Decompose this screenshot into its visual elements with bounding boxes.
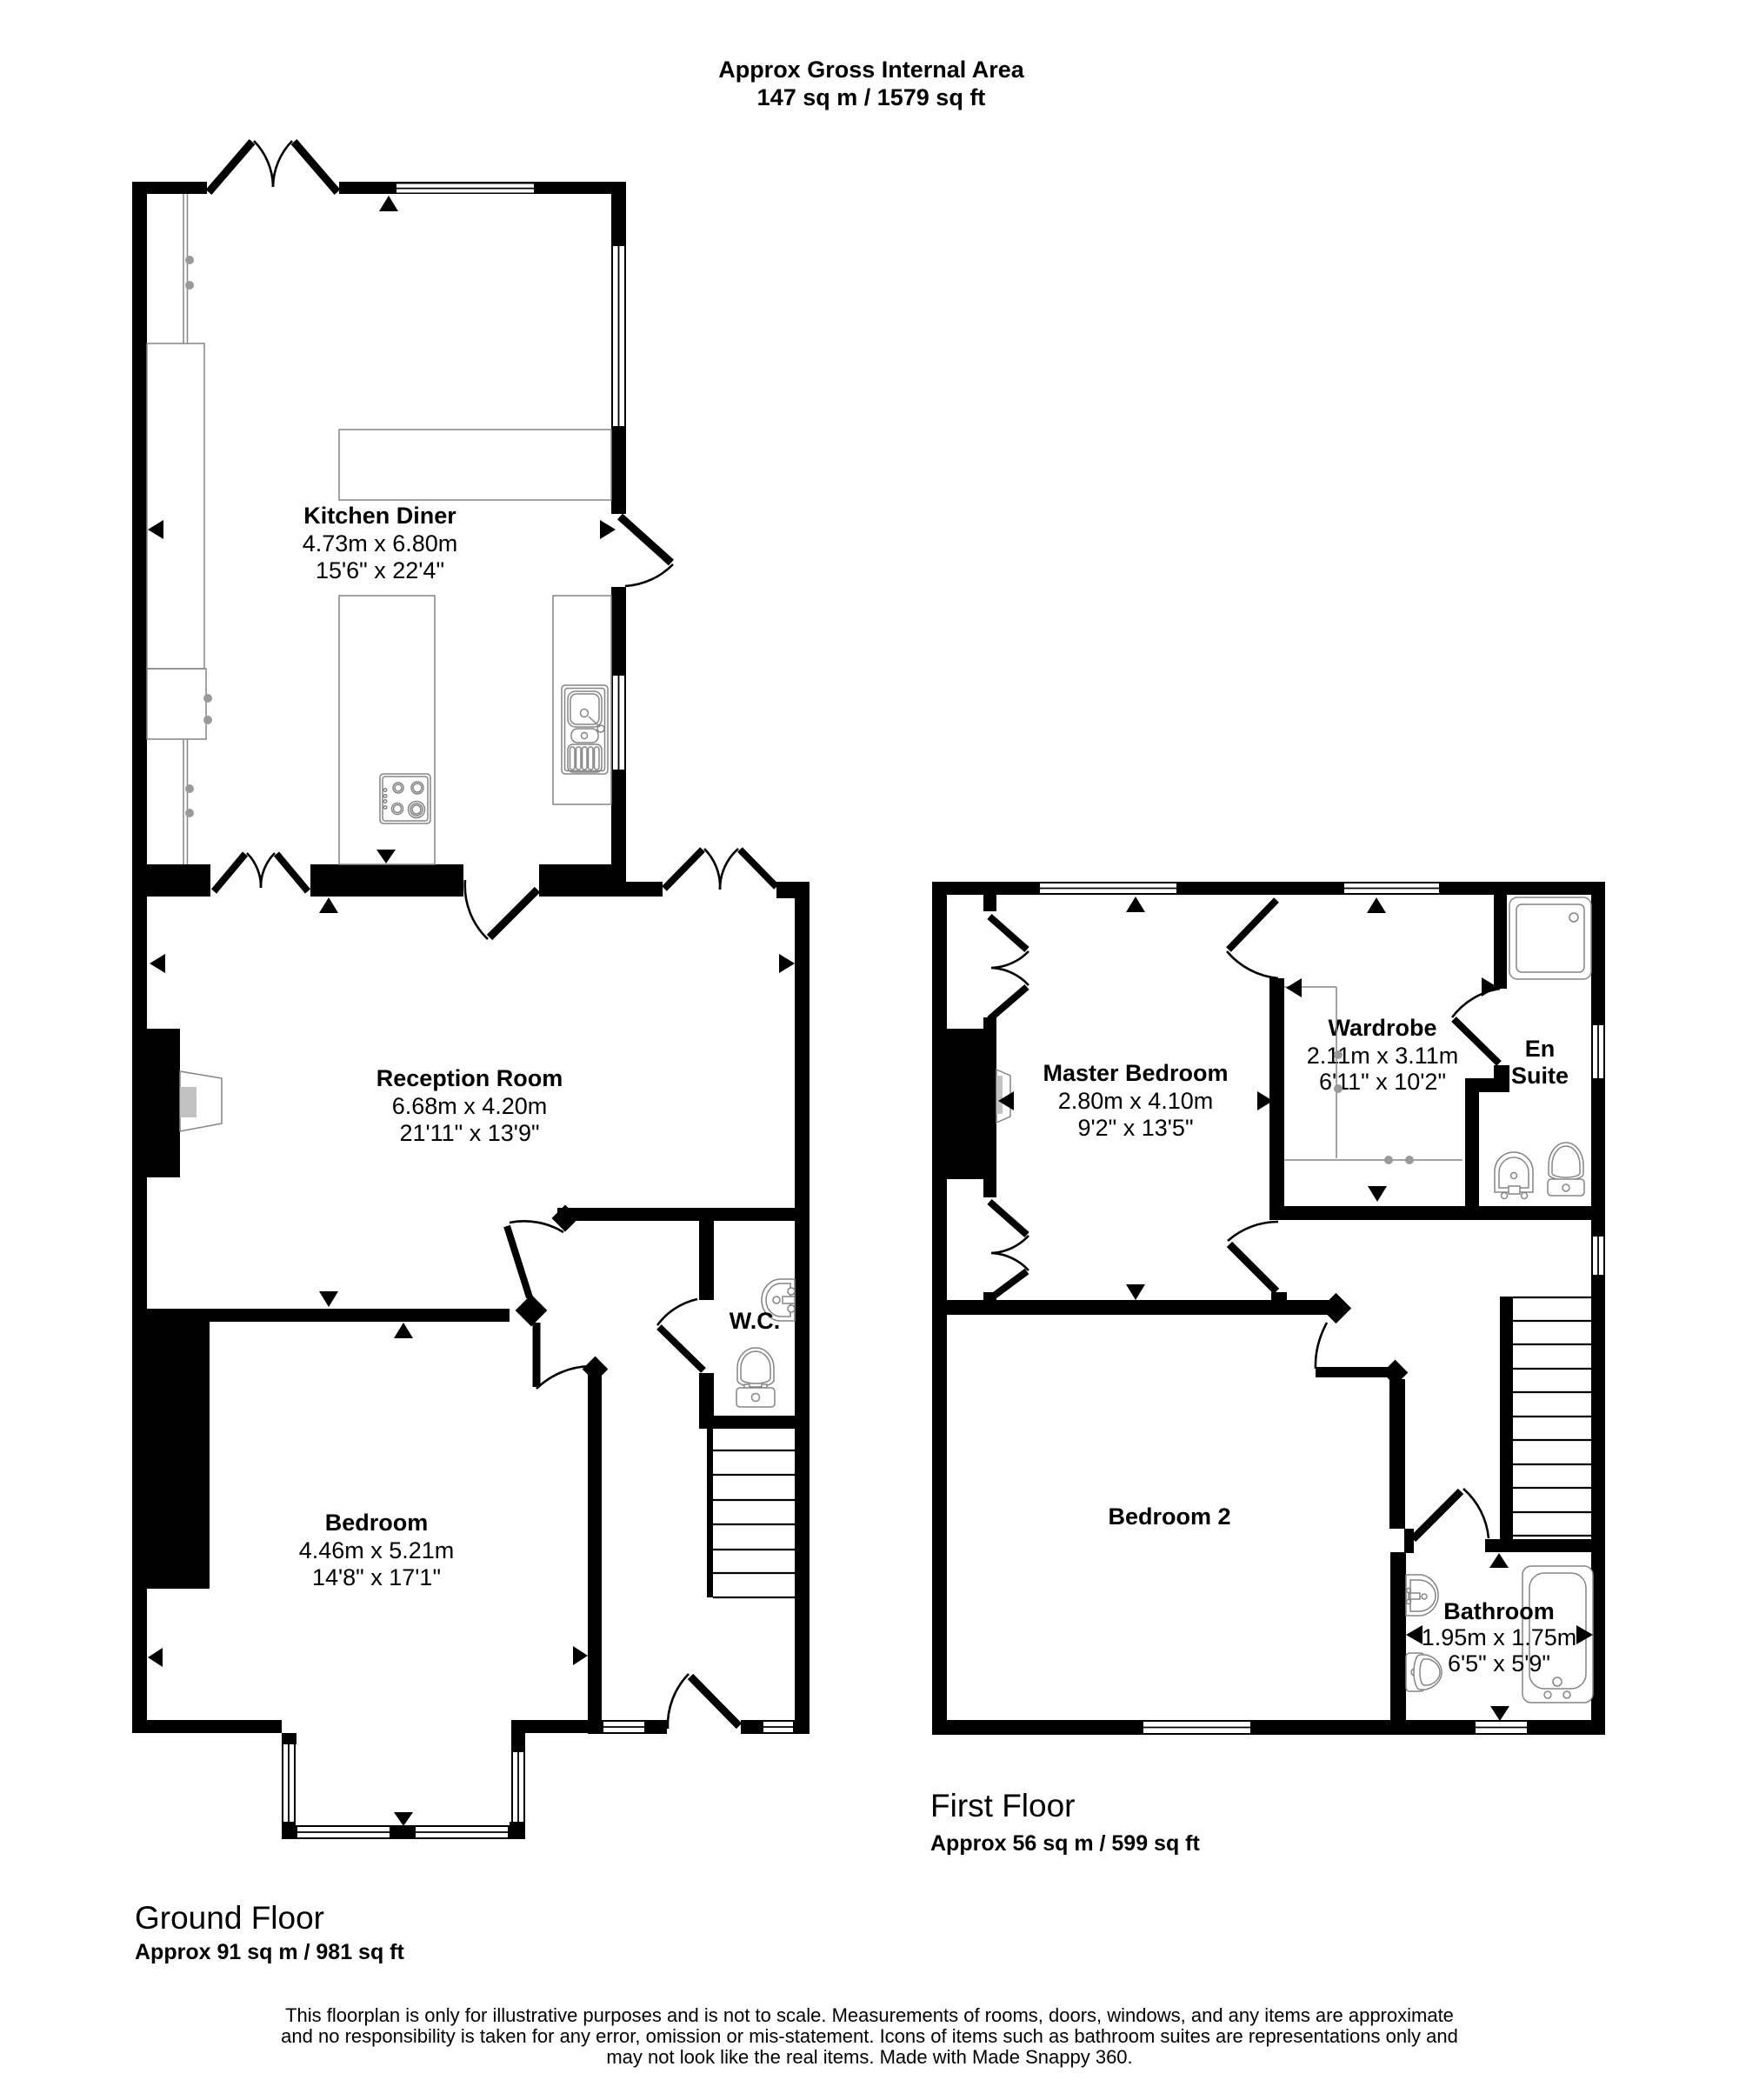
svg-text:Approx 91 sq m / 981 sq ft: Approx 91 sq m / 981 sq ft: [135, 1940, 404, 1964]
svg-text:4.46m x 5.21m: 4.46m x 5.21m: [299, 1537, 455, 1563]
svg-text:may not look like the real ite: may not look like the real items. Made w…: [606, 2046, 1132, 2068]
svg-text:W.C.: W.C.: [730, 1308, 781, 1334]
svg-text:and no responsibility is taken: and no responsibility is taken for any e…: [281, 2025, 1458, 2047]
svg-text:First Floor: First Floor: [930, 1788, 1076, 1823]
svg-text:Bedroom: Bedroom: [325, 1510, 429, 1536]
svg-text:2.80m x 4.10m: 2.80m x 4.10m: [1058, 1088, 1214, 1114]
svg-text:Approx Gross Internal Area: Approx Gross Internal Area: [718, 57, 1025, 83]
svg-text:6.68m x 4.20m: 6.68m x 4.20m: [392, 1093, 548, 1119]
svg-text:Kitchen Diner: Kitchen Diner: [303, 503, 456, 529]
svg-text:1.95m x 1.75m: 1.95m x 1.75m: [1422, 1624, 1577, 1650]
svg-text:6'5" x 5'9": 6'5" x 5'9": [1448, 1650, 1550, 1677]
svg-text:147 sq m / 1579 sq ft: 147 sq m / 1579 sq ft: [757, 84, 986, 110]
svg-text:This floorplan is only for ill: This floorplan is only for illustrative …: [285, 2004, 1454, 2026]
svg-text:9'2" x 13'5": 9'2" x 13'5": [1077, 1115, 1193, 1141]
svg-text:4.73m x 6.80m: 4.73m x 6.80m: [303, 530, 458, 557]
svg-text:Approx 56 sq m / 599 sq ft: Approx 56 sq m / 599 sq ft: [930, 1831, 1200, 1856]
svg-text:2.11m x 3.11m: 2.11m x 3.11m: [1307, 1043, 1459, 1069]
svg-text:Ground Floor: Ground Floor: [135, 1900, 324, 1936]
svg-text:15'6" x 22'4": 15'6" x 22'4": [316, 557, 444, 583]
svg-text:Reception Room: Reception Room: [376, 1065, 563, 1091]
svg-text:En: En: [1525, 1036, 1556, 1062]
svg-text:21'11" x 13'9": 21'11" x 13'9": [399, 1120, 539, 1146]
svg-text:Master Bedroom: Master Bedroom: [1043, 1060, 1228, 1086]
svg-text:14'8" x 17'1": 14'8" x 17'1": [312, 1564, 441, 1590]
svg-text:Wardrobe: Wardrobe: [1328, 1015, 1436, 1041]
svg-text:Bedroom 2: Bedroom 2: [1108, 1503, 1230, 1530]
svg-text:Suite: Suite: [1511, 1063, 1569, 1089]
svg-text:Bathroom: Bathroom: [1443, 1598, 1555, 1624]
